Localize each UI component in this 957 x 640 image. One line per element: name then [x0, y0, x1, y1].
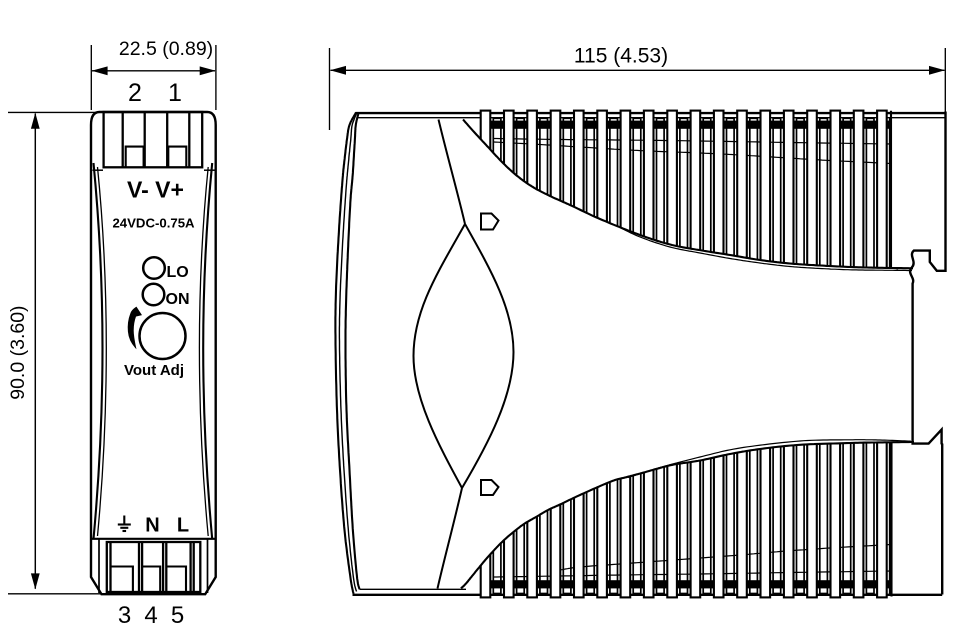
svg-text:N: N — [145, 515, 159, 537]
svg-text:Vout Adj: Vout Adj — [124, 362, 184, 379]
svg-text:2: 2 — [128, 79, 142, 107]
svg-text:3: 3 — [118, 602, 131, 629]
svg-text:22.5 (0.89): 22.5 (0.89) — [119, 38, 213, 60]
svg-text:115 (4.53): 115 (4.53) — [574, 45, 668, 68]
svg-text:LO: LO — [167, 264, 189, 281]
svg-text:5: 5 — [171, 602, 184, 629]
svg-text:V- V+: V- V+ — [127, 177, 184, 203]
svg-text:L: L — [177, 515, 189, 537]
svg-text:4: 4 — [144, 602, 157, 629]
svg-text:1: 1 — [168, 79, 182, 107]
svg-text:24VDC-0.75A: 24VDC-0.75A — [112, 215, 195, 230]
svg-text:ON: ON — [166, 291, 190, 308]
svg-text:90.0 (3.60): 90.0 (3.60) — [7, 305, 29, 399]
